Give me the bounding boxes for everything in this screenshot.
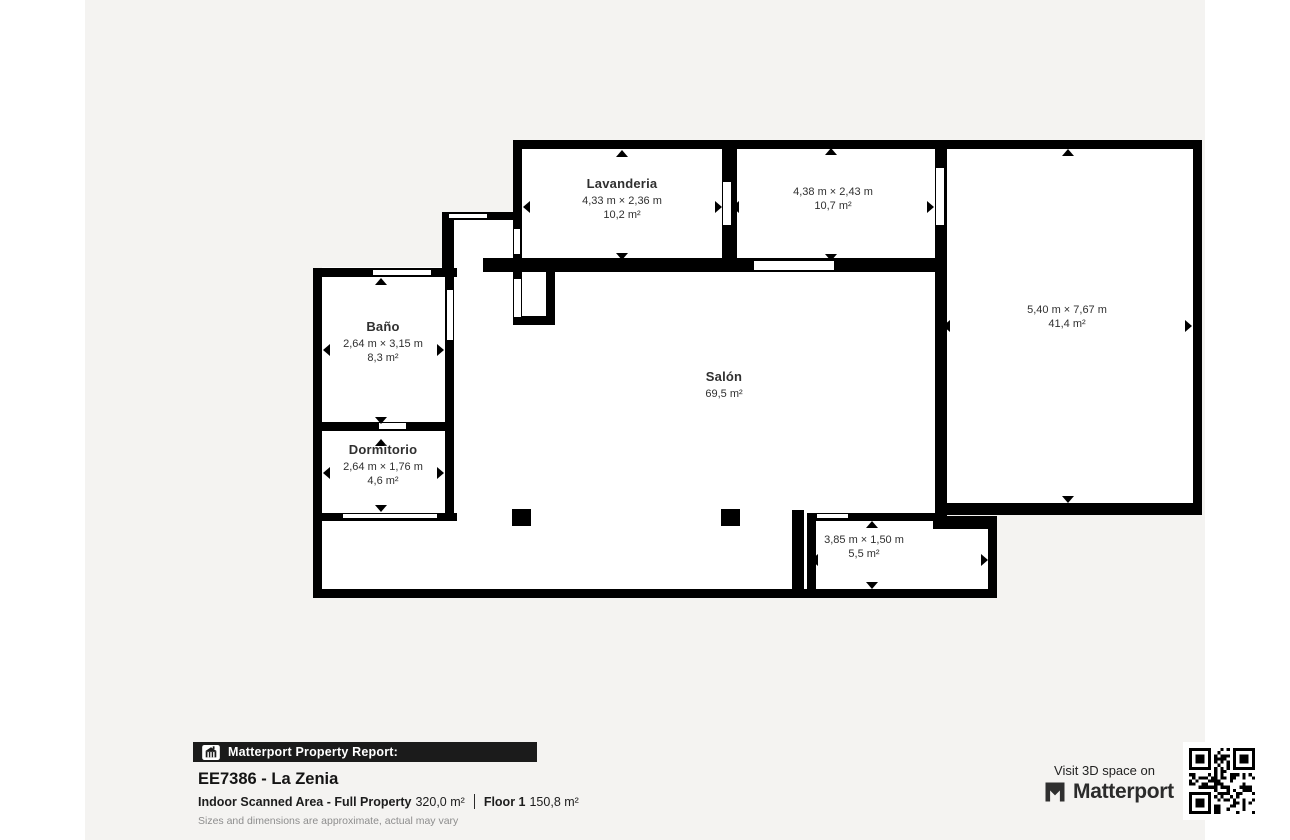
window bbox=[342, 513, 438, 519]
room-dimensions: 4,38 m × 2,43 m bbox=[793, 186, 873, 198]
floor-label: Floor 1 bbox=[484, 795, 526, 809]
room-name: Baño bbox=[343, 319, 423, 334]
left-door-arrow bbox=[523, 201, 530, 213]
report-bar-label: Matterport Property Report: bbox=[228, 745, 398, 759]
wall-segment bbox=[513, 316, 555, 325]
room-area: 5,5 m² bbox=[824, 548, 904, 560]
down-door-arrow bbox=[866, 582, 878, 589]
room-label: 3,85 m × 1,50 m5,5 m² bbox=[824, 534, 904, 560]
left-door-arrow bbox=[323, 344, 330, 356]
wall-segment bbox=[483, 258, 947, 272]
room-area: 69,5 m² bbox=[705, 388, 742, 400]
wall-segment bbox=[1193, 140, 1202, 515]
door-opening bbox=[514, 279, 521, 317]
right-door-arrow bbox=[437, 467, 444, 479]
wall-segment bbox=[802, 589, 997, 598]
disclaimer-text: Sizes and dimensions are approximate, ac… bbox=[198, 815, 458, 827]
right-door-arrow bbox=[715, 201, 722, 213]
room-area: 4,6 m² bbox=[343, 475, 423, 487]
door-opening bbox=[514, 229, 520, 254]
wall-segment bbox=[988, 516, 997, 598]
up-door-arrow bbox=[1062, 149, 1074, 156]
room-name: Dormitorio bbox=[343, 442, 423, 457]
right-door-arrow bbox=[437, 344, 444, 356]
door-opening bbox=[723, 182, 731, 225]
qr-code bbox=[1183, 742, 1261, 820]
down-door-arrow bbox=[1062, 496, 1074, 503]
window bbox=[372, 269, 432, 276]
room-label-ba-o: Baño2,64 m × 3,15 m8,3 m² bbox=[343, 319, 423, 364]
pillar bbox=[721, 509, 740, 526]
room-dimensions: 2,64 m × 3,15 m bbox=[343, 338, 423, 350]
window bbox=[753, 260, 835, 271]
matterport-logo-icon bbox=[1043, 780, 1067, 804]
room-area: 41,4 m² bbox=[1027, 318, 1107, 330]
room-label: 5,40 m × 7,67 m41,4 m² bbox=[1027, 304, 1107, 330]
door-opening bbox=[936, 168, 944, 225]
report-header-bar: Matterport Property Report: bbox=[193, 742, 537, 762]
down-door-arrow bbox=[375, 505, 387, 512]
wall-segment bbox=[792, 510, 804, 598]
room-label-dormitorio: Dormitorio2,64 m × 1,76 m4,6 m² bbox=[343, 442, 423, 487]
window bbox=[816, 513, 849, 519]
wall-segment bbox=[513, 140, 1202, 149]
left-door-arrow bbox=[943, 320, 950, 332]
room-dimensions: 3,85 m × 1,50 m bbox=[824, 534, 904, 546]
room-dimensions: 5,40 m × 7,67 m bbox=[1027, 304, 1107, 316]
room-name: Lavanderia bbox=[582, 176, 662, 191]
down-door-arrow bbox=[825, 254, 837, 261]
property-title: EE7386 - La Zenia bbox=[198, 770, 338, 789]
room-area: 8,3 m² bbox=[343, 352, 423, 364]
report-canvas: Lavanderia4,33 m × 2,36 m10,2 m²4,38 m ×… bbox=[85, 0, 1205, 840]
scan-summary: Indoor Scanned Area - Full Property 320,… bbox=[198, 794, 579, 809]
room-dimensions: 4,33 m × 2,36 m bbox=[582, 195, 662, 207]
pillar bbox=[512, 509, 531, 526]
room-label-sal-n: Salón69,5 m² bbox=[705, 369, 742, 400]
scan-area-label: Indoor Scanned Area - Full Property bbox=[198, 795, 411, 809]
up-door-arrow bbox=[825, 148, 837, 155]
left-door-arrow bbox=[811, 554, 818, 566]
wall-segment bbox=[313, 589, 804, 598]
up-door-arrow bbox=[375, 278, 387, 285]
right-door-arrow bbox=[1185, 320, 1192, 332]
separator bbox=[474, 794, 475, 809]
left-door-arrow bbox=[732, 201, 739, 213]
up-door-arrow bbox=[616, 150, 628, 157]
room-label: 4,38 m × 2,43 m10,7 m² bbox=[793, 186, 873, 212]
down-door-arrow bbox=[616, 253, 628, 260]
down-door-arrow bbox=[375, 417, 387, 424]
left-door-arrow bbox=[323, 467, 330, 479]
matterport-wordmark: Matterport bbox=[1073, 780, 1174, 804]
right-door-arrow bbox=[981, 554, 988, 566]
room-area: 10,7 m² bbox=[793, 200, 873, 212]
up-door-arrow bbox=[866, 521, 878, 528]
room-area: 10,2 m² bbox=[582, 209, 662, 221]
wall-segment bbox=[935, 503, 1202, 515]
floor-plan: Lavanderia4,33 m × 2,36 m10,2 m²4,38 m ×… bbox=[85, 0, 1290, 840]
room-name: Salón bbox=[705, 369, 742, 384]
floor-value: 150,8 m² bbox=[529, 795, 578, 809]
property-report-icon bbox=[202, 745, 220, 760]
window bbox=[448, 213, 488, 219]
right-door-arrow bbox=[927, 201, 934, 213]
wall-segment bbox=[313, 268, 322, 598]
visit-3d-text: Visit 3D space on bbox=[1037, 763, 1172, 778]
scan-area-value: 320,0 m² bbox=[415, 795, 464, 809]
door-opening bbox=[447, 290, 453, 340]
room-label-lavanderia: Lavanderia4,33 m × 2,36 m10,2 m² bbox=[582, 176, 662, 221]
room-dimensions: 2,64 m × 1,76 m bbox=[343, 461, 423, 473]
matterport-link[interactable]: Matterport bbox=[1043, 780, 1174, 804]
